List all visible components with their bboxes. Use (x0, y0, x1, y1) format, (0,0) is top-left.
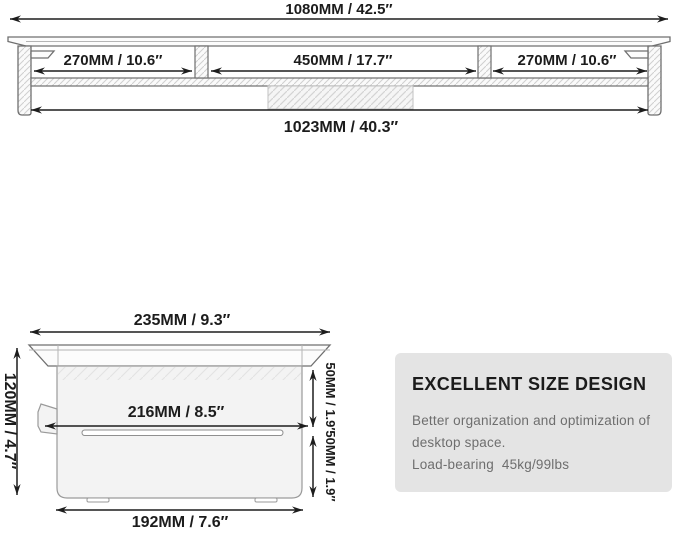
left-shelf-label: 270MM / 10.6″ (64, 52, 163, 69)
side-view-diagram: 235MM / 9.3″ 120MM / 4.7″ 216MM / 8.5″ 5… (0, 300, 360, 533)
center-shelf-label: 450MM / 17.7″ (294, 52, 393, 69)
total-width-label: 1080MM / 42.5″ (285, 1, 392, 18)
side-top-panel (29, 345, 330, 366)
right-shelf-label: 270MM / 10.6″ (518, 52, 617, 69)
stand-right-divider (478, 46, 491, 78)
dimension-total-width: 1080MM / 42.5″ (10, 1, 668, 23)
front-view-diagram: 1080MM / 42.5″ 270MM / 10.6″ 450MM / 17.… (0, 0, 679, 150)
base-depth-label: 192MM / 7.6″ (132, 514, 229, 531)
stand-top-panel (8, 37, 670, 46)
dimension-height: 120MM / 4.7″ (1, 348, 21, 495)
inner-width-label: 1023MM / 40.3″ (284, 119, 399, 136)
dimension-left-shelf: 270MM / 10.6″ (34, 52, 192, 75)
stand-shelf-board (31, 78, 648, 86)
lower-clearance-label: 50MM / 1.9″ (323, 430, 338, 501)
dimension-top-depth: 235MM / 9.3″ (30, 312, 330, 336)
height-label: 120MM / 4.7″ (1, 373, 18, 470)
side-slot (82, 430, 283, 436)
upper-clearance-label: 50MM / 1.9″ (323, 362, 338, 433)
info-box: EXCELLENT SIZE DESIGN Better organizatio… (395, 353, 672, 492)
stand-center-support (268, 86, 413, 109)
dimension-base-depth: 192MM / 7.6″ (56, 506, 303, 531)
dimension-center-shelf: 450MM / 17.7″ (211, 52, 476, 75)
stand-left-divider (195, 46, 208, 78)
dimension-upper-clearance: 50MM / 1.9″ (309, 362, 338, 433)
top-depth-label: 235MM / 9.3″ (134, 312, 231, 329)
dimension-right-shelf: 270MM / 10.6″ (493, 52, 647, 75)
info-box-title: EXCELLENT SIZE DESIGN (412, 374, 658, 395)
info-box-load-bearing: Load-bearing 45kg/99lbs (412, 454, 658, 476)
info-box-description-line1: Better organization and optimization of (412, 410, 658, 432)
info-box-description-line2: desktop space. (412, 432, 658, 454)
product-dimension-diagram: 1080MM / 42.5″ 270MM / 10.6″ 450MM / 17.… (0, 0, 679, 533)
dimension-inner-width: 1023MM / 40.3″ (31, 106, 648, 136)
side-hook-tab (38, 404, 57, 434)
inner-depth-label: 216MM / 8.5″ (128, 404, 225, 421)
dimension-lower-clearance: 50MM / 1.9″ (309, 430, 338, 501)
